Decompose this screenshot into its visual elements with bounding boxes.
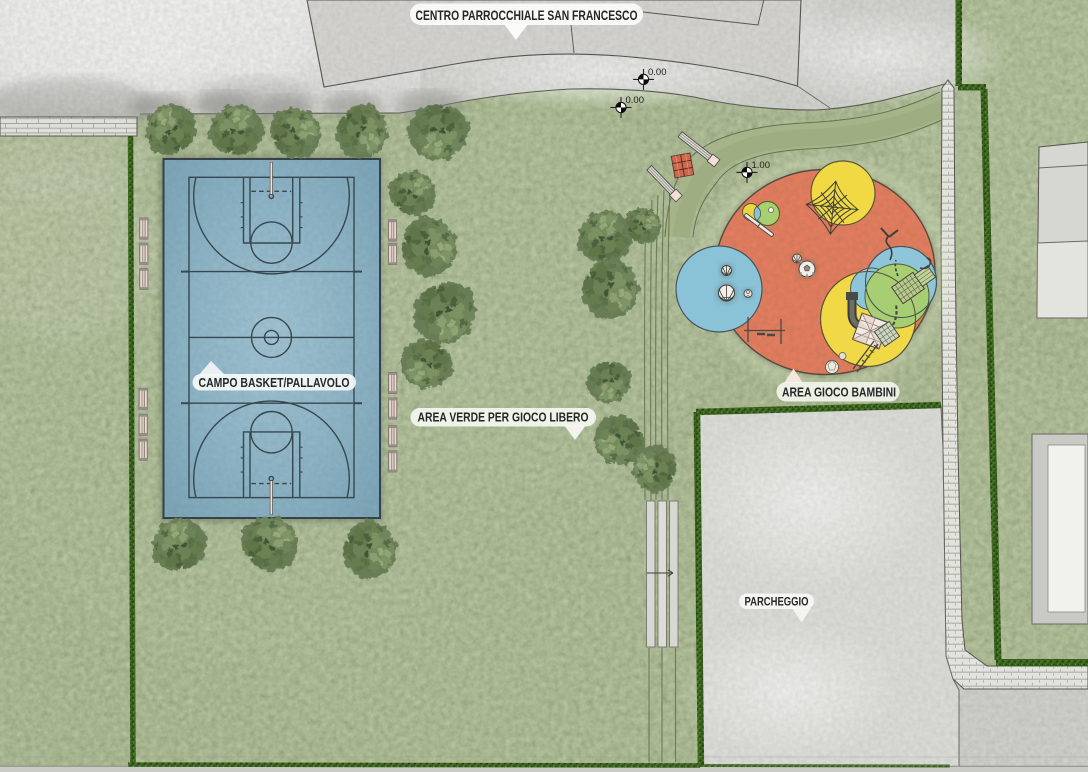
svg-text:AREA GIOCO BAMBINI: AREA GIOCO BAMBINI <box>782 384 896 399</box>
svg-text:AREA VERDE PER GIOCO LIBERO: AREA VERDE PER GIOCO LIBERO <box>418 411 589 425</box>
svg-text:CAMPO BASKET/PALLAVOLO: CAMPO BASKET/PALLAVOLO <box>199 375 350 390</box>
svg-text:PARCHEGGIO: PARCHEGGIO <box>745 595 809 609</box>
svg-text:0.00: 0.00 <box>648 67 667 78</box>
svg-text:0.00: 0.00 <box>626 95 645 106</box>
svg-text:1.00: 1.00 <box>752 160 771 171</box>
svg-text:CENTRO PARROCCHIALE SAN FRANCE: CENTRO PARROCCHIALE SAN FRANCESCO <box>416 7 638 23</box>
